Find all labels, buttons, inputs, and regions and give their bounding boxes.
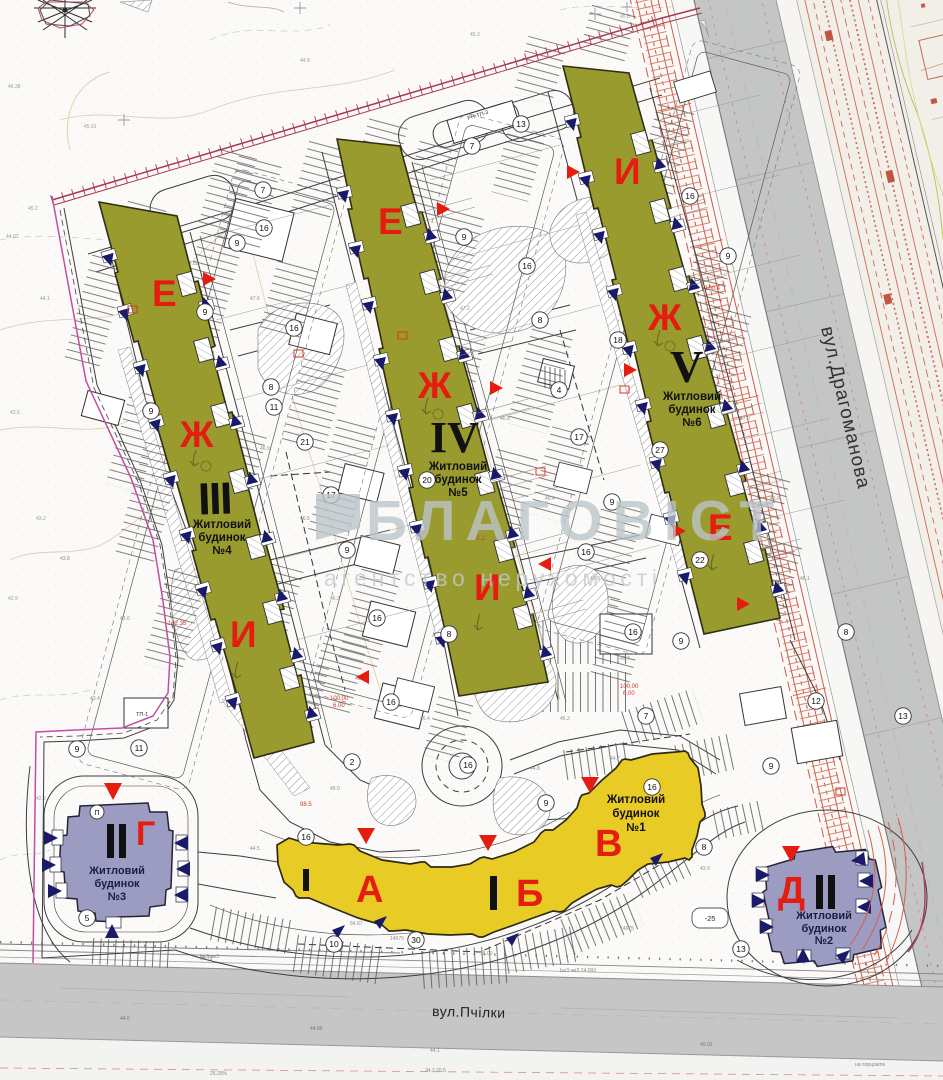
svg-text:будинок: будинок: [94, 878, 140, 890]
svg-text:14675: 14675: [620, 926, 634, 932]
svg-text:9: 9: [462, 232, 467, 242]
svg-text:15.00: 15.00: [480, 951, 493, 957]
svg-text:Ж: Ж: [417, 365, 452, 406]
svg-text:21: 21: [300, 437, 310, 447]
svg-text:ТП-1: ТП-1: [136, 712, 148, 718]
svg-text:9: 9: [203, 307, 208, 317]
svg-text:Житловий: Житловий: [192, 519, 251, 531]
svg-text:20: 20: [422, 475, 432, 485]
svg-text:8: 8: [844, 627, 849, 637]
svg-text:44.85: 44.85: [310, 1026, 323, 1032]
svg-text:9: 9: [679, 636, 684, 646]
svg-text:44.7: 44.7: [610, 756, 620, 762]
svg-text:18: 18: [613, 335, 623, 345]
svg-text:47.2: 47.2: [460, 306, 470, 312]
svg-text:44.6: 44.6: [120, 1016, 130, 1022]
svg-text:на порцsame: на порцsame: [855, 1062, 886, 1068]
svg-text:43.4: 43.4: [90, 696, 100, 702]
svg-text:13: 13: [898, 711, 908, 721]
svg-text:44.5: 44.5: [250, 846, 260, 852]
svg-text:№2: №2: [815, 935, 833, 947]
svg-text:100.00: 100.00: [330, 696, 349, 702]
svg-text:43.6: 43.6: [120, 616, 130, 622]
svg-text:8: 8: [702, 842, 707, 852]
svg-text:14675: 14675: [390, 936, 404, 942]
svg-text:46.1: 46.1: [800, 576, 810, 582]
svg-text:9: 9: [544, 798, 549, 808]
svg-text:46.8: 46.8: [500, 416, 510, 422]
svg-text:6.00: 6.00: [333, 703, 345, 709]
svg-text:Ж: Ж: [179, 414, 214, 455]
svg-text:98.5: 98.5: [300, 802, 312, 808]
svg-text:будинок: будинок: [801, 923, 847, 935]
svg-text:№3: №3: [108, 891, 126, 903]
svg-text:№1: №1: [626, 822, 646, 834]
svg-text:27: 27: [655, 445, 665, 455]
svg-text:9: 9: [75, 744, 80, 754]
svg-text:42.9: 42.9: [8, 596, 18, 602]
svg-text:В: В: [595, 823, 622, 865]
svg-text:будинок: будинок: [198, 532, 245, 544]
svg-text:47.6: 47.6: [250, 296, 260, 302]
svg-text:Житловий: Житловий: [606, 794, 665, 806]
svg-text:45.0: 45.0: [330, 786, 340, 792]
svg-text:16: 16: [301, 832, 311, 842]
svg-text:9: 9: [726, 251, 731, 261]
svg-text:43.6: 43.6: [10, 410, 20, 416]
svg-text:46.5: 46.5: [300, 516, 310, 522]
svg-text:45.2: 45.2: [560, 716, 570, 722]
svg-text:БЛАГОВІСТ: БЛАГОВІСТ: [366, 489, 784, 553]
svg-text:16: 16: [259, 223, 269, 233]
svg-text:11: 11: [270, 402, 279, 412]
svg-text:45.91: 45.91: [84, 124, 97, 130]
svg-text:42.2: 42.2: [36, 796, 46, 802]
svg-text:будинок: будинок: [612, 808, 659, 820]
svg-text:13: 13: [516, 119, 526, 129]
svg-text:5: 5: [85, 913, 90, 923]
svg-text:43.9: 43.9: [700, 866, 710, 872]
svg-text:45.3: 45.3: [470, 32, 480, 38]
svg-text:43.2: 43.2: [36, 516, 46, 522]
svg-text:Житловий: Житловий: [795, 910, 852, 922]
svg-text:IV: IV: [430, 413, 479, 462]
svg-text:45.2: 45.2: [28, 206, 38, 212]
svg-text:16: 16: [289, 323, 299, 333]
svg-text:Житловий: Житловий: [88, 865, 145, 877]
svg-text:Д: Д: [778, 870, 805, 912]
svg-text:17: 17: [574, 432, 584, 442]
svg-text:25.29: 25.29: [200, 956, 213, 962]
svg-text:Е: Е: [378, 201, 403, 242]
svg-text:16: 16: [522, 261, 532, 271]
svg-text:13: 13: [736, 944, 746, 954]
svg-text:44.8: 44.8: [530, 766, 540, 772]
svg-text:9: 9: [345, 545, 350, 555]
svg-text:11: 11: [135, 743, 144, 753]
svg-text:34.2 70.5: 34.2 70.5: [425, 1068, 446, 1074]
svg-text:16: 16: [628, 627, 638, 637]
svg-text:44.9: 44.9: [300, 58, 310, 64]
svg-text:агентство нерухомості: агентство нерухомості: [324, 565, 662, 591]
svg-text:8: 8: [538, 315, 543, 325]
svg-text:46.2: 46.2: [330, 596, 340, 602]
svg-text:43.8: 43.8: [60, 556, 70, 562]
svg-text:7: 7: [261, 185, 266, 195]
svg-text:9: 9: [769, 761, 774, 771]
svg-text:12: 12: [811, 696, 821, 706]
svg-text:V: V: [670, 341, 703, 392]
svg-text:84.87: 84.87: [350, 921, 363, 927]
svg-text:№6: №6: [682, 417, 701, 429]
svg-text:16: 16: [463, 760, 473, 770]
svg-text:16: 16: [685, 191, 695, 201]
svg-text:16: 16: [372, 613, 382, 623]
svg-text:Б: Б: [516, 873, 543, 915]
svg-text:102.35: 102.35: [168, 621, 187, 627]
svg-text:44.87: 44.87: [6, 234, 19, 240]
svg-text:2: 2: [350, 757, 355, 767]
svg-text:9: 9: [235, 238, 240, 248]
svg-text:16: 16: [647, 782, 657, 792]
svg-text:И: И: [614, 151, 641, 192]
svg-text:7: 7: [470, 141, 475, 151]
svg-text:будинок: будинок: [668, 404, 715, 416]
svg-text:вул.Пчілки: вул.Пчілки: [432, 1003, 506, 1021]
svg-text:4: 4: [557, 385, 562, 395]
svg-text:-25: -25: [705, 914, 716, 923]
svg-text:30: 30: [411, 935, 421, 945]
svg-text:46.38: 46.38: [8, 84, 21, 90]
svg-text:И: И: [230, 614, 257, 655]
svg-text:45.7: 45.7: [620, 656, 630, 662]
svg-text:46.9: 46.9: [260, 446, 270, 452]
svg-text:ЬиЗ чкіЗ 24.093: ЬиЗ чкіЗ 24.093: [560, 968, 596, 974]
svg-text:44.1: 44.1: [40, 296, 50, 302]
svg-text:6.00: 6.00: [623, 691, 635, 697]
svg-text:16: 16: [386, 697, 396, 707]
svg-text:Житловий: Житловий: [428, 461, 487, 473]
svg-text:25.29%: 25.29%: [210, 1071, 228, 1077]
svg-text:Ж: Ж: [647, 297, 682, 338]
svg-text:Г: Г: [136, 815, 155, 853]
svg-text:100.00: 100.00: [620, 684, 639, 690]
svg-text:44.1: 44.1: [430, 1048, 440, 1054]
svg-text:7: 7: [644, 711, 649, 721]
svg-text:10: 10: [329, 939, 339, 949]
svg-text:Житловий: Житловий: [662, 391, 721, 403]
svg-text:Е: Е: [152, 273, 177, 314]
svg-text:№4: №4: [212, 545, 232, 557]
svg-text:22: 22: [695, 555, 705, 565]
svg-text:8: 8: [447, 629, 452, 639]
svg-text:будинок: будинок: [434, 474, 481, 486]
svg-text:9: 9: [149, 406, 154, 416]
svg-text:45.4: 45.4: [420, 716, 430, 722]
svg-text:45.02: 45.02: [700, 1042, 713, 1048]
svg-text:8: 8: [269, 382, 274, 392]
svg-text:А: А: [356, 869, 383, 911]
svg-text:П: П: [94, 810, 99, 817]
svg-text:100.4: 100.4: [705, 286, 721, 292]
